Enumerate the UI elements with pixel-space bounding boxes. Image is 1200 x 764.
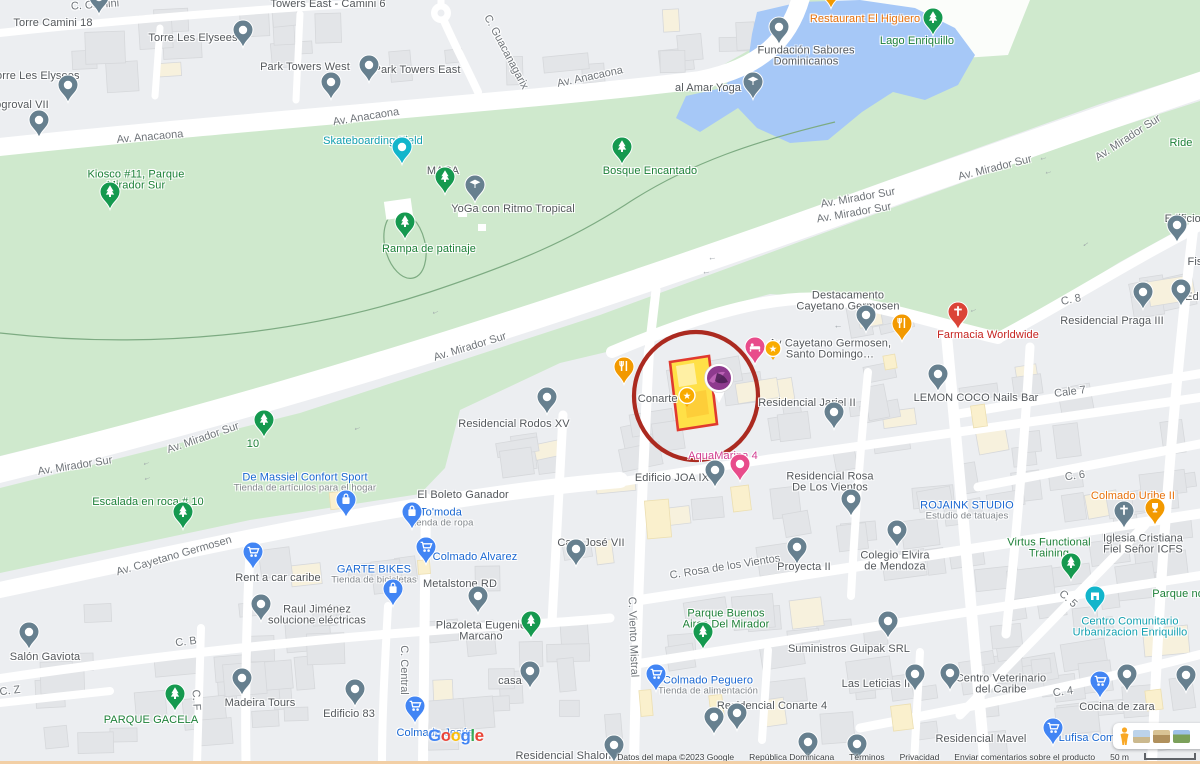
google-logo-letter: e: [475, 726, 484, 745]
map-pin-dot-icon[interactable]: [467, 585, 489, 620]
map-pin-cart-icon[interactable]: [415, 536, 437, 571]
map-pin-cross-icon[interactable]: [947, 301, 969, 336]
google-logo-letter: g: [461, 726, 471, 745]
map-pin-food-icon[interactable]: [820, 0, 842, 15]
privacy-link[interactable]: Privacidad: [900, 752, 940, 762]
map-pin-dot-icon[interactable]: [823, 401, 845, 436]
google-maps-view[interactable]: C. CaminiAv. AnacaonaAv. AnacaonaAv. Ana…: [0, 0, 1200, 764]
road-label-av-cayetano-germosen: Av. Cayetano Germosen: [115, 534, 233, 578]
map-pin-tree-icon[interactable]: [164, 683, 186, 718]
road-label-av-anacaona: Av. Anacaona: [116, 128, 184, 146]
map-pin-dot-icon[interactable]: [840, 488, 862, 523]
map-pin-dot-icon[interactable]: [855, 304, 877, 339]
road-label-av-mirador-sur: Av. Mirador Sur: [37, 454, 113, 478]
poi-label-edificio-joa-ix[interactable]: Edificio JOA IX: [635, 473, 709, 484]
feedback-link[interactable]: Enviar comentarios sobre el producto: [954, 752, 1095, 762]
poi-label-las-leticias-ii[interactable]: Las Leticias II: [842, 679, 911, 690]
road-label-c-4: C. 4: [1052, 685, 1074, 700]
poi-label-park-towers-east[interactable]: Park Towers East: [374, 65, 461, 76]
scale-bar: [1144, 753, 1196, 760]
poi-label-plazoleta-eugenio[interactable]: Plazoleta EugenioMarcano: [436, 621, 526, 642]
map-pin-tree-icon[interactable]: [520, 610, 542, 645]
road-label-av-anacaona: Av. Anacaona: [332, 106, 400, 128]
one-way-arrow-icon: ←: [834, 320, 843, 330]
poi-label-raul-jim-nez[interactable]: Raul Jiménezsolucione eléctricas: [268, 605, 366, 626]
road-label-c-guacanagarix: C. Guacanagarix: [481, 13, 530, 92]
map-pin-cap-icon[interactable]: [742, 71, 764, 106]
star-marker-icon[interactable]: ★: [764, 340, 782, 366]
photo-marker-icon[interactable]: [701, 363, 737, 410]
poi-label-residencial-mavel[interactable]: Residencial Mavel: [936, 734, 1027, 745]
map-pin-cart-icon[interactable]: [242, 541, 264, 576]
map-data-attribution: Datos del mapa ©2023 Google: [617, 752, 734, 762]
poi-label-towers-east-camini-6[interactable]: Towers East - Camini 6: [270, 0, 385, 9]
map-pin-dot-icon[interactable]: [704, 459, 726, 494]
map-pin-dot-icon[interactable]: [1132, 281, 1154, 316]
svg-text:★: ★: [683, 391, 692, 402]
svg-text:★: ★: [769, 344, 778, 355]
terms-link[interactable]: Términos: [849, 752, 884, 762]
map-pin-dot-icon[interactable]: [320, 71, 342, 106]
one-way-arrow-icon: ←: [707, 251, 718, 262]
one-way-arrow-icon: ←: [429, 305, 441, 317]
google-logo-letter: o: [451, 726, 461, 745]
poi-label-lufisa-com[interactable]: Lufisa Com: [1059, 733, 1116, 744]
one-way-arrow-icon: ←: [141, 471, 153, 483]
map-pin-dot-icon[interactable]: [18, 621, 40, 656]
map-pin-cart-icon[interactable]: [645, 663, 667, 698]
terrain-thumbnail[interactable]: [1153, 730, 1170, 743]
poi-label-destacamento[interactable]: DestacamentoCayetano Germosen: [796, 291, 899, 312]
google-logo-letter: G: [428, 726, 441, 745]
map-pin-tree-icon[interactable]: [1060, 552, 1082, 587]
one-way-arrow-icon: ←: [1042, 165, 1053, 177]
satellite-thumbnail[interactable]: [1133, 730, 1150, 743]
map-pin-dot-icon[interactable]: [519, 660, 541, 695]
road-label-av-mirador-sur: Av. Mirador Sur: [165, 420, 240, 456]
map-pin-tree-icon[interactable]: [611, 136, 633, 171]
map-pin-tree-icon[interactable]: [434, 166, 456, 201]
map-pin-tree-icon[interactable]: [253, 409, 275, 444]
map-pin-bag-icon[interactable]: [401, 501, 423, 536]
map-pin-food-icon[interactable]: [613, 356, 635, 391]
scale-text: 50 m: [1110, 752, 1129, 762]
poi-label-torre-camini-18[interactable]: Torre Camini 18: [13, 18, 92, 29]
map-pin-bag-icon[interactable]: [335, 489, 357, 524]
poi-label-residencial-shalom[interactable]: Residencial Shalom: [515, 751, 614, 762]
map-pin-food-icon[interactable]: [891, 313, 913, 348]
star-marker-icon[interactable]: ★: [678, 387, 696, 413]
map-pin-cup-icon[interactable]: [1144, 497, 1166, 532]
road-label-c-f: C. F: [189, 689, 202, 710]
map-pin-bed-icon[interactable]: [744, 336, 766, 371]
road-label-c-b: C. B: [175, 635, 198, 650]
road-label-c-rosa-de-los-vientos: C. Rosa de los Vientos: [669, 552, 781, 581]
map-pin-dot-icon[interactable]: [786, 536, 808, 571]
map-pin-dot-icon[interactable]: [1175, 664, 1197, 699]
map-pin-dot-icon[interactable]: [231, 667, 253, 702]
poi-label-suministros-guipak-srl[interactable]: Suministros Guipak SRL: [788, 644, 910, 655]
one-way-arrow-icon: ←: [140, 456, 152, 468]
map-pin-dot-icon[interactable]: [88, 0, 110, 21]
poi-label-colmado-alvarez[interactable]: Colmado Alvarez: [433, 552, 518, 563]
map-pin-dot-icon[interactable]: [939, 662, 961, 697]
map-pin-bag-icon[interactable]: [382, 578, 404, 613]
google-logo[interactable]: Google: [428, 726, 484, 746]
road-label-av-mirador-sur: Av. Mirador Sur: [957, 153, 1033, 183]
road-label-c-z: C. Z: [0, 684, 21, 698]
poi-label-restaurant-el-hig-ero[interactable]: Restaurant El Higüero: [810, 14, 920, 25]
map-pin-tree-icon[interactable]: [692, 621, 714, 656]
road-label-c-central: C. Central: [398, 645, 410, 695]
map-pin-dot-icon[interactable]: [886, 519, 908, 554]
map-pin-dot-icon[interactable]: [57, 74, 79, 109]
poi-label-iglesia-cristiana[interactable]: Iglesia CristianaFiel Señor ICFS: [1103, 534, 1183, 555]
map-pin-dot-icon[interactable]: [729, 453, 751, 488]
region-attribution: República Dominicana: [749, 752, 834, 762]
google-logo-letter: o: [441, 726, 451, 745]
poi-label-rojaink-studio[interactable]: ROJAINK STUDIOEstudio de tatuajes: [920, 501, 1014, 522]
one-way-arrow-icon: ←: [1078, 236, 1091, 249]
road-label-c-6: C. 6: [1064, 469, 1086, 484]
poi-label-centro-veterinario[interactable]: Centro Veterinariodel Caribe: [956, 674, 1046, 695]
imagery-thumbnail[interactable]: [1173, 730, 1190, 743]
poi-label-av-cayetano-germosen[interactable]: Av Cayetano Germosen,Santo Domingo…: [769, 339, 891, 360]
map-pin-cross-icon[interactable]: [1113, 500, 1135, 535]
poi-label-parque-nor[interactable]: Parque nor: [1152, 589, 1200, 600]
map-pin-comm-icon[interactable]: [1084, 585, 1106, 620]
map-pin-dot-icon[interactable]: [877, 610, 899, 645]
poi-label-al-amar-yoga[interactable]: al Amar Yoga: [675, 83, 741, 94]
map-pin-dot-icon[interactable]: [1170, 278, 1192, 313]
road-label-c-8: C. 8: [1060, 292, 1082, 308]
map-pin-dot-icon[interactable]: [904, 663, 926, 698]
map-pin-dot-icon[interactable]: [391, 136, 413, 171]
map-pin-tree-icon[interactable]: [99, 181, 121, 216]
road-label-cale-7: Cale 7: [1053, 384, 1086, 400]
one-way-arrow-icon: ←: [701, 265, 712, 276]
road-label-c-viento-mistral: C. Viento Mistral: [626, 597, 641, 678]
map-pin-dot-icon[interactable]: [1116, 663, 1138, 698]
map-pin-dot-icon[interactable]: [1166, 214, 1188, 249]
map-pin-tree-icon[interactable]: [394, 211, 416, 246]
road-label-av-mirador-sur: Av. Mirador Sur: [432, 330, 508, 364]
poi-label-torre-les-elysees[interactable]: Torre Les Elysees: [148, 33, 237, 44]
map-pin-dot-icon[interactable]: [232, 19, 254, 54]
map-pin-dot-icon[interactable]: [358, 54, 380, 89]
road-label-c-5: C. 5: [1056, 588, 1079, 610]
map-label-layer: C. CaminiAv. AnacaonaAv. AnacaonaAv. Ana…: [0, 0, 1200, 764]
map-pin-dot-icon[interactable]: [250, 593, 272, 628]
map-pin-dot-icon[interactable]: [703, 706, 725, 741]
map-pin-cart-icon[interactable]: [1089, 670, 1111, 705]
map-pin-tree-icon[interactable]: [172, 501, 194, 536]
map-pin-dot-icon[interactable]: [536, 386, 558, 421]
map-pin-dot-icon[interactable]: [927, 363, 949, 398]
pegman-icon[interactable]: [1119, 727, 1130, 746]
poi-label-ride[interactable]: Ride: [1169, 138, 1192, 149]
map-pin-tree-icon[interactable]: [922, 7, 944, 42]
map-pin-cart-icon[interactable]: [404, 695, 426, 730]
poi-label-el-boleto-ganador[interactable]: El Boleto Ganador: [417, 490, 509, 501]
map-pin-dot-icon[interactable]: [565, 538, 587, 573]
one-way-arrow-icon: ←: [1037, 151, 1048, 163]
imagery-card: [1113, 723, 1200, 749]
map-pin-dot-icon[interactable]: [768, 16, 790, 51]
map-pin-dot-icon[interactable]: [726, 702, 748, 737]
map-pin-cart-icon[interactable]: [1042, 717, 1064, 752]
road-label-av-mirador-sur: Av. Mirador Sur: [1093, 112, 1163, 163]
poi-label-fis[interactable]: Fis: [1188, 257, 1200, 268]
poi-label-colmado-peguero[interactable]: Colmado PegueroTienda de alimentación: [658, 676, 758, 697]
poi-label-residencial-praga-iii[interactable]: Residencial Praga III: [1060, 316, 1164, 327]
map-pin-dot-icon[interactable]: [28, 109, 50, 144]
road-label-av-anacaona: Av. Anacaona: [556, 64, 624, 90]
map-pin-dot-icon[interactable]: [344, 678, 366, 713]
one-way-arrow-icon: ←: [351, 421, 363, 433]
map-pin-cap-icon[interactable]: [464, 174, 486, 209]
